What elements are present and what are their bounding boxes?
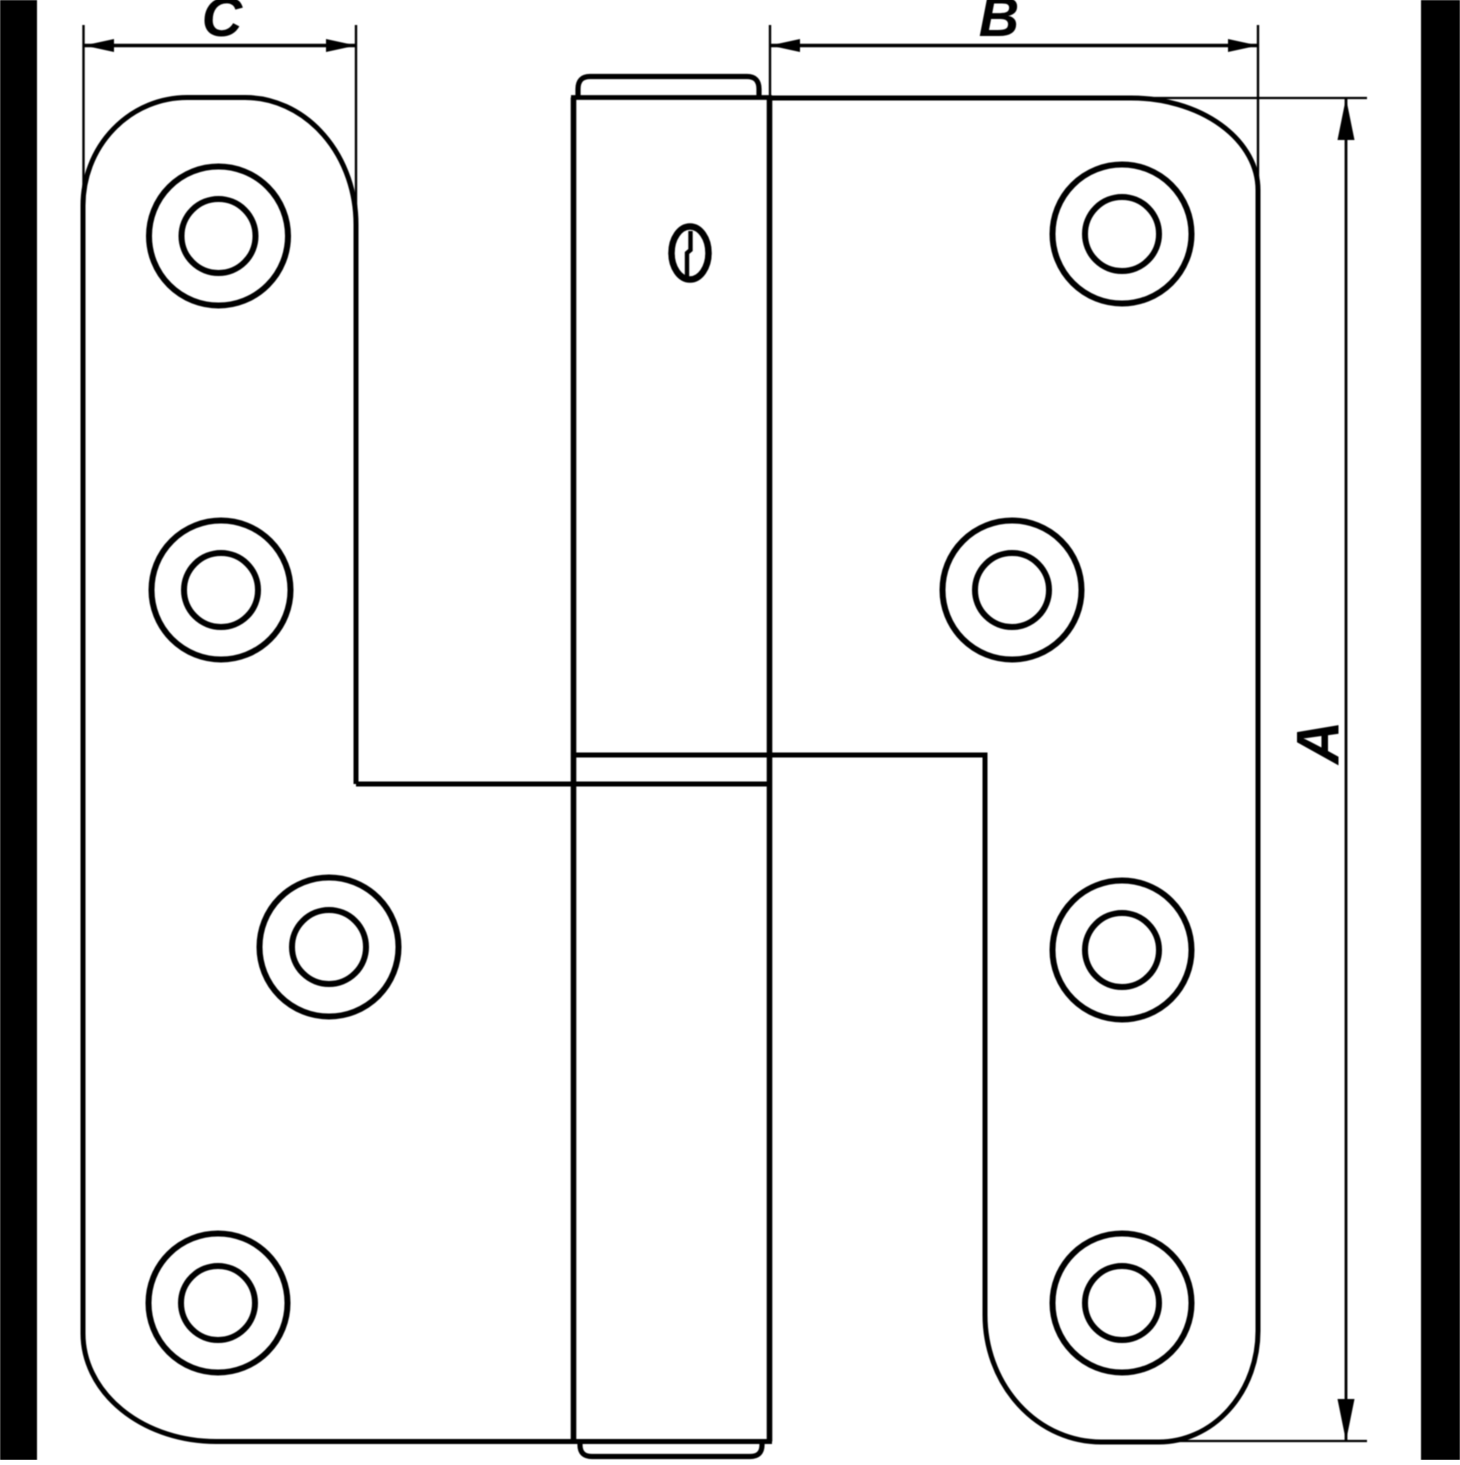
svg-text:B: B bbox=[979, 0, 1019, 48]
svg-text:C: C bbox=[202, 0, 244, 48]
svg-text:A: A bbox=[1285, 721, 1352, 766]
